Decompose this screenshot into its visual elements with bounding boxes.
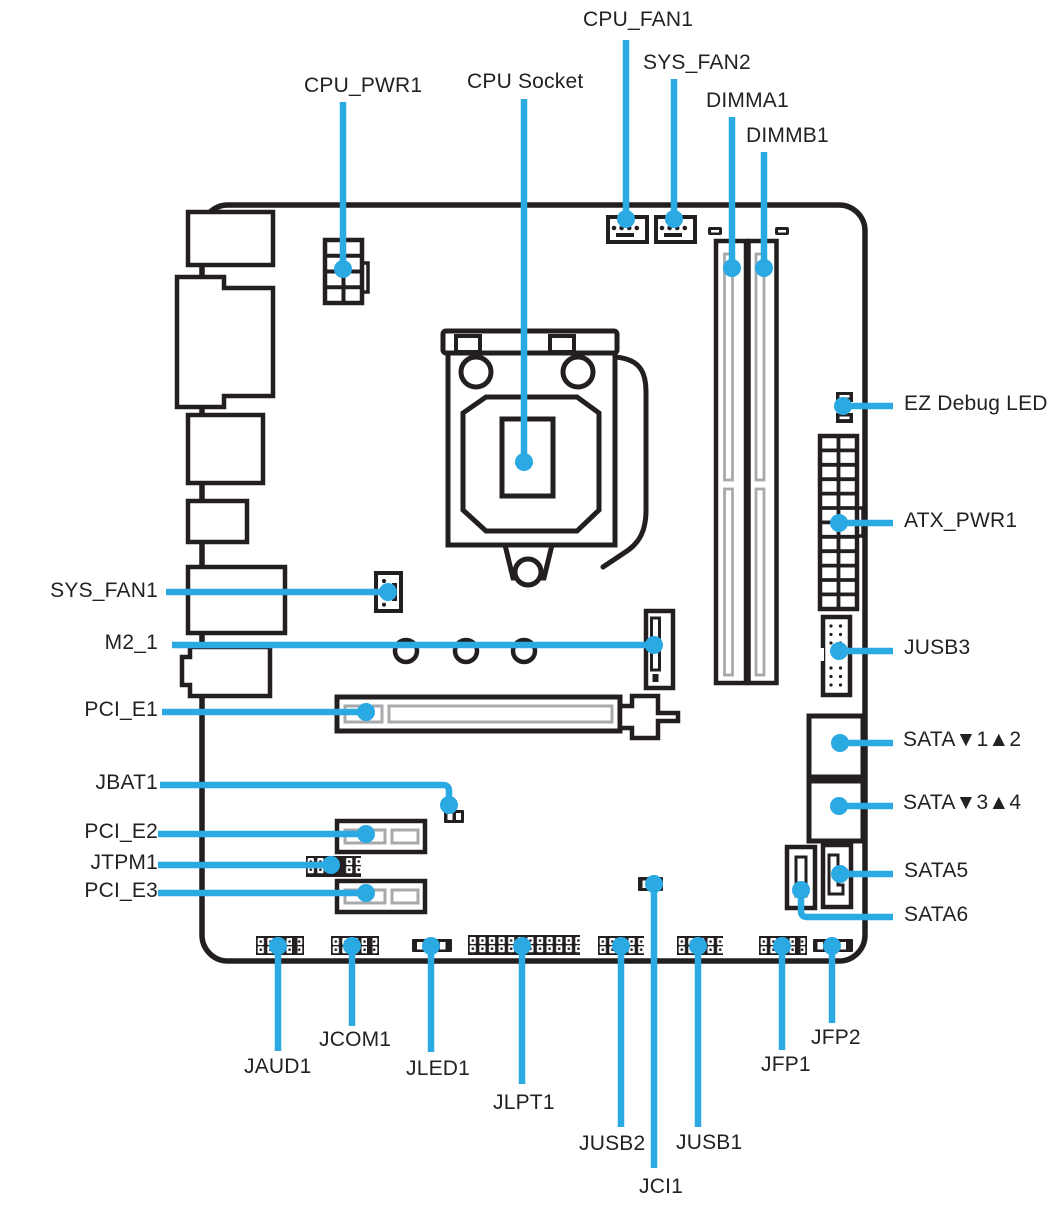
label-sata-3-4: SATA▼3▲4 [903,792,1021,814]
label-jbat1: JBAT1 [0,772,158,794]
label-jled1: JLED1 [406,1058,470,1080]
label-jcom1: JCOM1 [319,1029,391,1051]
label-jci1: JCI1 [639,1176,683,1198]
label-m2-1: M2_1 [0,632,158,654]
label-sys-fan1: SYS_FAN1 [0,580,158,602]
label-sys-fan2: SYS_FAN2 [643,52,751,74]
pci-e3-slot [337,881,425,912]
label-jfp2: JFP2 [811,1027,861,1049]
label-jfp1: JFP1 [761,1054,811,1076]
callout-jusb1 [689,937,707,1127]
cpu-socket [443,331,646,585]
label-ez-debug-led: EZ Debug LED [904,393,1048,415]
label-sata5: SATA5 [904,860,968,882]
label-cpu-fan1: CPU_FAN1 [583,9,693,31]
label-sata-1-2: SATA▼1▲2 [903,729,1021,751]
label-cpu-pwr1: CPU_PWR1 [304,75,422,97]
label-sata6: SATA6 [904,904,968,926]
label-dimmb1: DIMMB1 [746,125,829,147]
label-pci-e2: PCI_E2 [0,821,158,843]
label-pci-e1: PCI_E1 [0,699,158,721]
label-cpu-socket: CPU Socket [467,71,583,93]
dimmb1-slot [749,241,777,683]
label-dimma1: DIMMA1 [706,90,789,112]
label-pci-e3: PCI_E3 [0,880,158,902]
callout-cpu-fan1 [617,40,635,228]
dimm-slots [708,227,789,683]
callout-jfp2 [823,937,841,1023]
label-jtpm1: JTPM1 [0,852,158,874]
dimma1-slot [716,241,746,683]
label-jaud1: JAUD1 [244,1056,312,1078]
label-jusb3: JUSB3 [904,637,970,659]
callout-jusb2 [612,937,630,1127]
label-jusb2: JUSB2 [579,1133,645,1155]
motherboard-layout-diagram: CPU_FAN1 SYS_FAN2 CPU_PWR1 CPU Socket DI… [0,0,1057,1228]
label-jlpt1: JLPT1 [493,1092,555,1114]
label-jusb1: JUSB1 [676,1132,742,1154]
label-atx-pwr1: ATX_PWR1 [904,510,1017,532]
motherboard-drawing [0,0,1057,1228]
callout-jcom1 [343,937,361,1026]
